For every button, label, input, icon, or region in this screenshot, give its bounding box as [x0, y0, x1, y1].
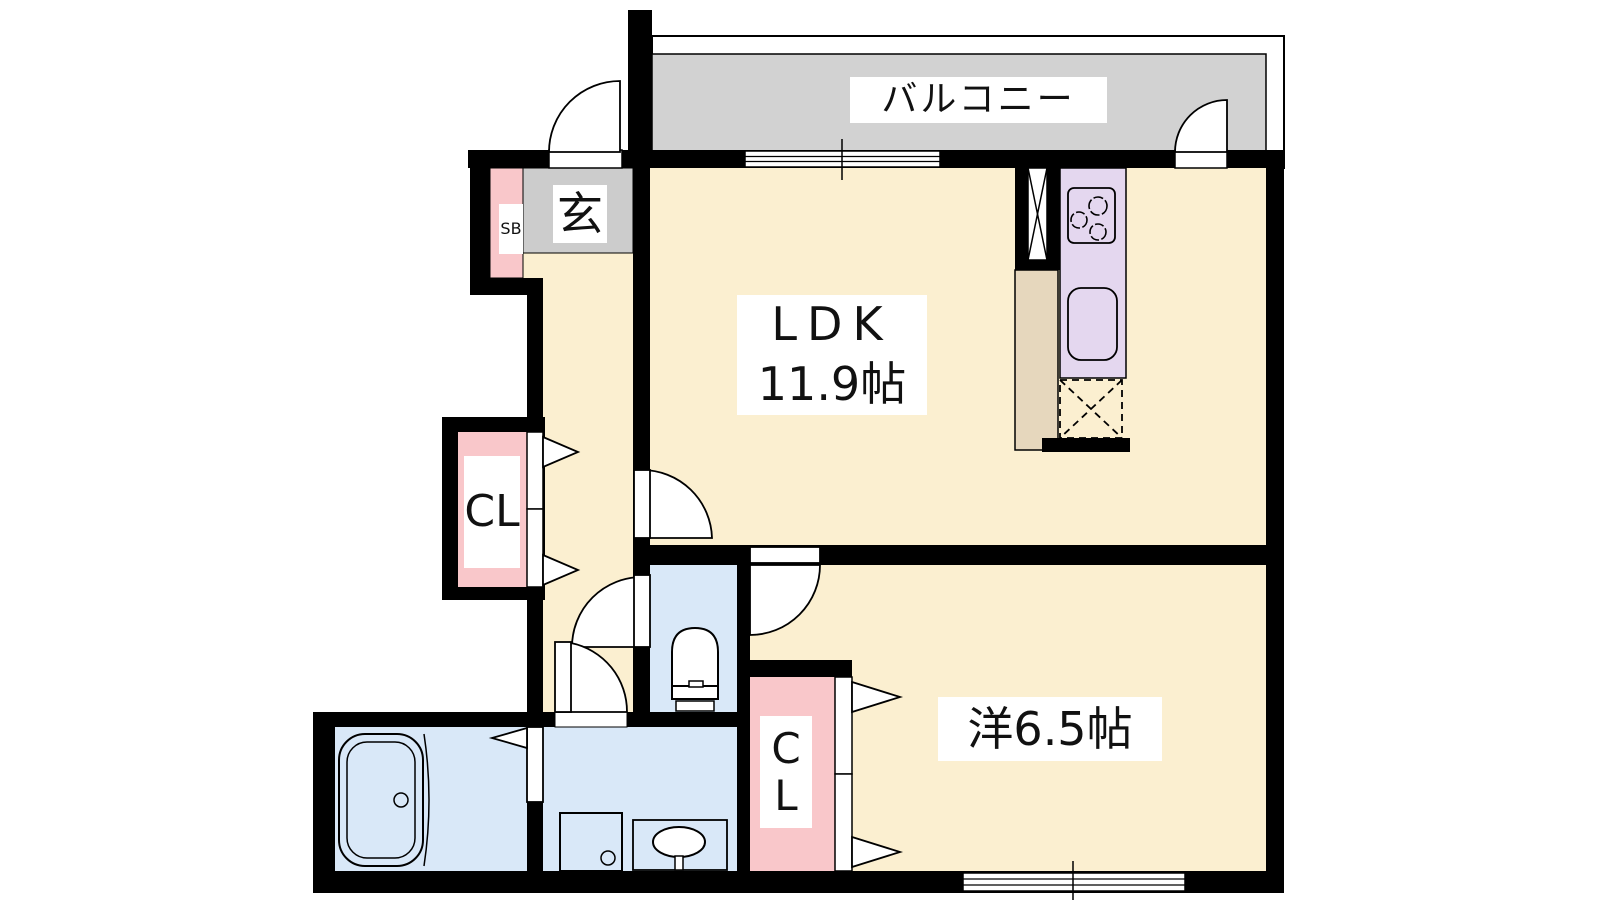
toilet	[672, 628, 718, 711]
toilet-base	[676, 701, 714, 711]
washroom-door-opening	[555, 712, 627, 727]
wall-hall-left-lower	[527, 600, 543, 727]
bedroom-closet-label: CL	[760, 716, 812, 828]
floor-plan: バルコニー 玄 SB CL LDK 11.9帖 洋6.5帖 CL	[0, 0, 1600, 900]
hall-closet-door-panel	[527, 509, 543, 587]
hall-closet-door-panel	[527, 432, 543, 509]
kitchen-side-panel	[1015, 270, 1058, 450]
wall-ldk-bedroom	[633, 545, 1284, 565]
ldk-label: LDK	[737, 295, 927, 353]
toilet-door-leaf	[634, 575, 650, 647]
basin-tap	[675, 856, 683, 870]
wall-top-column	[628, 10, 652, 168]
ldk-door-leaf	[634, 470, 650, 538]
toilet-bowl	[672, 628, 718, 686]
entrance-label: 玄	[553, 185, 607, 243]
stove	[1068, 188, 1115, 243]
bedroom-closet-door-panel	[835, 677, 852, 774]
hall-closet-label: CL	[464, 456, 520, 568]
hallway-floor-notch	[523, 253, 543, 281]
wall-counter-stub	[1042, 438, 1130, 452]
wall-toilet-bedroom	[737, 565, 750, 893]
entrance-door-swing	[549, 81, 620, 152]
bedroom-closet-door-panel	[835, 774, 852, 871]
shoe-box-label: SB	[499, 204, 523, 254]
pipe-space	[1028, 168, 1047, 260]
kitchen-sink	[1068, 288, 1117, 360]
bathtub	[339, 734, 429, 866]
wall-right	[1266, 150, 1284, 893]
ldk-size-label: 11.9帖	[737, 353, 927, 415]
balcony-label: バルコニー	[850, 77, 1107, 123]
toilet-lid-notch	[689, 681, 703, 687]
wall-below-shoebox	[470, 278, 543, 295]
washroom-floor	[543, 727, 737, 872]
bathroom-sliding-door	[527, 727, 543, 802]
western-room-label: 洋6.5帖	[938, 697, 1162, 761]
toilet-tank	[672, 686, 718, 699]
wall-bedroom-closet-top	[737, 660, 852, 677]
wall-left-upper	[470, 168, 490, 295]
bedroom-door-leaf	[750, 547, 820, 563]
washroom-door-leaf	[555, 642, 571, 712]
wall-hall-left-upper	[527, 295, 543, 417]
wall-bath-top	[313, 712, 750, 727]
wall-bath-left	[313, 727, 335, 893]
